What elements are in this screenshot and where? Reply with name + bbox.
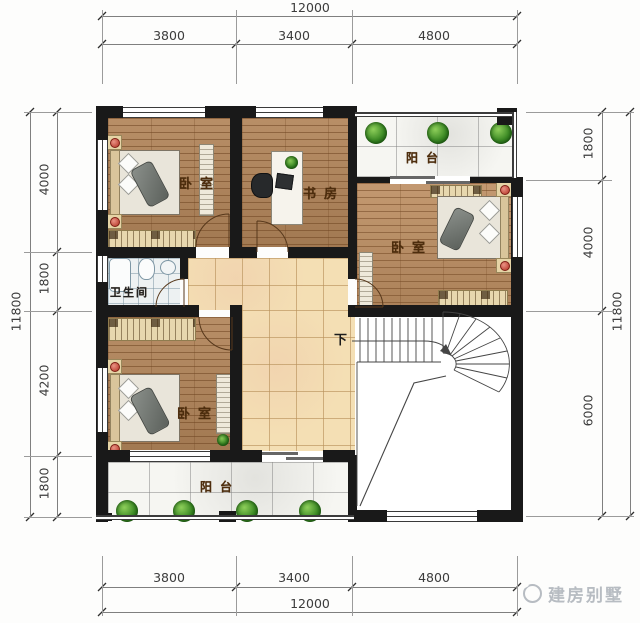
bed-headboard (500, 196, 509, 259)
extension-line (236, 556, 237, 616)
wall (180, 247, 188, 279)
dim-left-seg3: 4200 (37, 351, 52, 411)
extension-line (517, 556, 518, 616)
extension-line (526, 516, 634, 517)
laptop (275, 173, 294, 190)
dim-left-seg1: 4000 (37, 150, 52, 210)
extension-line (236, 10, 237, 84)
nightstand (106, 359, 122, 374)
sliding-door-panel (426, 181, 470, 184)
window (97, 368, 108, 432)
wall (470, 177, 512, 183)
window (130, 451, 210, 462)
dim-left-total: 11800 (9, 282, 24, 342)
window (97, 256, 108, 282)
dim-bottom-total: 12000 (260, 596, 360, 611)
wall (288, 247, 353, 258)
bathroom-label: 卫生间 (110, 284, 149, 300)
dim-bottom-seg3: 4800 (394, 570, 474, 585)
lamp-dot (110, 362, 120, 372)
window (123, 107, 205, 118)
dim-line (630, 112, 631, 516)
lamp-dot (110, 217, 120, 227)
sliding-door (390, 176, 470, 184)
hallway-upper-floor (188, 258, 348, 310)
plant (365, 122, 387, 144)
sliding-door-panel (262, 452, 298, 455)
lamp-dot (500, 261, 510, 271)
window (387, 511, 477, 522)
extension-line (24, 311, 92, 312)
floor-plan: 卧室 书房 阳台 卧室 卫生间 卧室 阳台 下 12000 3800 3400 … (0, 0, 640, 623)
wall (205, 106, 230, 118)
bedroom-bottom-left-label: 卧室 (177, 403, 219, 422)
watermark-logo-icon (523, 584, 542, 603)
balcony-rail (355, 112, 512, 117)
desk-plant (285, 156, 298, 169)
dim-line (102, 44, 517, 45)
plant (490, 122, 512, 144)
dim-line (102, 587, 517, 588)
extension-line (526, 311, 612, 312)
dim-line (602, 112, 603, 516)
dim-bottom-seg2: 3400 (254, 570, 334, 585)
dim-right-seg2: 4000 (581, 213, 596, 273)
wall (348, 455, 357, 515)
dim-top-seg3: 4800 (394, 28, 474, 43)
wall (96, 450, 130, 462)
dim-left-seg4: 1800 (37, 454, 52, 514)
dim-right-seg3: 6000 (581, 381, 596, 441)
cabinet (359, 252, 373, 308)
study-label: 书房 (303, 183, 345, 202)
wall (477, 510, 523, 522)
bedroom-top-left-label: 卧室 (179, 173, 221, 192)
dim-right-total: 11800 (610, 282, 625, 342)
wardrobe (108, 318, 196, 341)
stairwell-floor (355, 317, 511, 510)
sliding-door (262, 451, 323, 461)
dim-line (102, 612, 517, 613)
extension-line (526, 180, 612, 181)
wall (230, 305, 242, 462)
dim-bottom-seg1: 3800 (129, 570, 209, 585)
window (97, 140, 108, 210)
balcony-top-label: 阳台 (406, 149, 446, 166)
nightstand (106, 135, 122, 150)
dim-line (102, 16, 517, 17)
lamp-dot (500, 185, 510, 195)
washbasin (138, 258, 155, 280)
window (256, 107, 323, 118)
dim-top-seg1: 3800 (129, 28, 209, 43)
extension-line (24, 112, 92, 113)
balcony-bottom-label: 阳台 (200, 478, 240, 495)
desk-chair (251, 173, 273, 198)
extension-line (352, 10, 353, 84)
extension-line (517, 10, 518, 84)
stair-down-label: 下 (334, 329, 347, 348)
wall (348, 305, 523, 317)
balcony-rail (96, 515, 354, 520)
sliding-door-panel (390, 176, 435, 179)
wall (242, 106, 256, 118)
window (512, 197, 523, 257)
wall (348, 177, 390, 183)
plant (427, 122, 449, 144)
shower-head (160, 260, 176, 275)
wall (230, 247, 257, 258)
wardrobe (438, 290, 508, 306)
plant (217, 434, 229, 446)
balcony-rail (512, 112, 517, 178)
wall (348, 183, 357, 279)
extension-line (102, 10, 103, 84)
dim-top-total: 12000 (260, 0, 360, 15)
dim-left-seg2: 1800 (37, 249, 52, 309)
extension-line (24, 517, 92, 518)
watermark-text: 建房别墅 (548, 581, 624, 606)
wall (96, 305, 199, 317)
sliding-door-panel (286, 457, 323, 460)
watermark: 建房别墅 (523, 581, 624, 606)
lamp-dot (110, 138, 120, 148)
dim-right-seg1: 1800 (581, 114, 596, 174)
extension-line (24, 456, 92, 457)
wardrobe (108, 230, 196, 248)
extension-line (102, 556, 103, 616)
bedroom-right-label: 卧室 (391, 237, 433, 256)
wall (230, 106, 242, 258)
dim-top-seg2: 3400 (254, 28, 334, 43)
extension-line (24, 252, 92, 253)
nightstand (106, 214, 122, 229)
